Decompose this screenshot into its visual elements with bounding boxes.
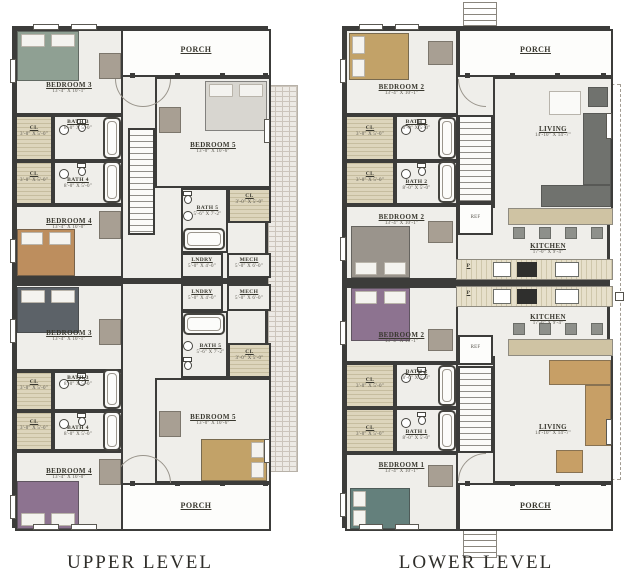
room-closet-c2 [345, 161, 395, 205]
porch-post [263, 73, 268, 78]
window [395, 24, 419, 30]
bed-bedroom4-b [17, 481, 79, 529]
kitchen-sink-b [493, 289, 511, 304]
stairs-lower-a [458, 115, 493, 203]
porch-post [175, 73, 180, 78]
bed-bedroom5-a [205, 81, 267, 131]
brick-patio [268, 85, 298, 472]
toilet-bath4-b [77, 413, 86, 426]
room-name: KITCHEN [493, 313, 603, 321]
party-wall-upper [15, 278, 265, 284]
tub-bath4-b [103, 411, 121, 451]
tub-bath1-b [438, 410, 456, 451]
bed-bedroom1 [350, 488, 410, 529]
bed-bedroom2-a [349, 33, 409, 80]
stairs-upper-a [128, 128, 155, 235]
window [10, 319, 16, 343]
ref-box-a [458, 203, 493, 235]
stool [539, 227, 551, 239]
porch-post [555, 481, 560, 486]
lower-level-title: LOWER LEVEL [342, 552, 610, 574]
porch-post [601, 73, 606, 78]
bed-bedroom3-a [17, 31, 79, 81]
room-porch-upper-bottom [121, 483, 271, 531]
stool [565, 323, 577, 335]
range-a [555, 262, 579, 277]
window [606, 419, 612, 445]
window [264, 439, 270, 463]
porch-post [510, 481, 515, 486]
range-b [555, 289, 579, 304]
window [71, 524, 97, 530]
window [340, 237, 346, 261]
tub-bath4-a [103, 161, 121, 203]
room-dims: 17'-0" X 9'-4" [493, 250, 603, 256]
porch-post [465, 481, 470, 486]
tub-bath2-a [438, 161, 456, 203]
room-closet-b3 [228, 343, 271, 378]
bed-bedroom4-a [17, 229, 75, 276]
porch-post [263, 481, 268, 486]
sink-bath1-b [401, 418, 411, 428]
room-closet-c1 [345, 115, 395, 161]
room-laundry-a [181, 253, 223, 278]
desk-bedroom4-b [99, 459, 121, 485]
stairs-lower-b [458, 366, 493, 453]
tub-bath3-a [103, 117, 121, 159]
bed-bedroom2-b [351, 226, 410, 278]
porch-post [510, 73, 515, 78]
desk-bedroom2-b [428, 221, 453, 243]
desk-bedroom2-c [428, 329, 453, 351]
room-closet-a3 [228, 188, 271, 223]
bed-bedroom2-c [351, 288, 410, 341]
window [33, 24, 59, 30]
toilet-bath3-a [77, 119, 86, 132]
stool [565, 227, 577, 239]
toilet-bath5-b [183, 357, 192, 370]
overhang-dashed-line [620, 84, 621, 480]
room-name: KITCHEN [493, 242, 603, 250]
toilet-bath1-b [417, 412, 426, 425]
room-closet-b2 [15, 411, 53, 451]
cooktop-a [517, 262, 537, 277]
toilet-bath3-b [77, 373, 86, 386]
kitchen-sink-a [493, 262, 511, 277]
sink-bath1-a [401, 125, 411, 135]
sink-bath5-b [183, 341, 193, 351]
porch-post [130, 73, 135, 78]
armchair-b [556, 450, 583, 473]
toilet-bath1-a [417, 119, 426, 132]
sink-bath3-b [59, 379, 69, 389]
tub-bath5-b [183, 313, 225, 335]
window [340, 321, 346, 345]
desk-bedroom5-a [159, 107, 181, 133]
window [10, 495, 16, 519]
window [71, 24, 97, 30]
room-laundry-b [181, 284, 223, 311]
window [606, 113, 612, 139]
sink-bath3-a [59, 125, 69, 135]
toilet-bath2-b [417, 367, 426, 380]
tub-bath1-a [438, 117, 456, 159]
toilet-bath2-a [417, 163, 426, 176]
sink-bath2-b [401, 373, 411, 383]
room-closet-c4 [345, 408, 395, 453]
door-arc [458, 79, 486, 107]
room-porch-upper-top [121, 29, 271, 77]
window [340, 59, 346, 83]
desk-bedroom4-a [99, 211, 121, 239]
stool [513, 323, 525, 335]
stool [591, 227, 603, 239]
label-kitchen-a: KITCHEN17'-0" X 9'-4" [493, 242, 603, 256]
bed-bedroom3-b [17, 287, 79, 333]
stool [539, 323, 551, 335]
window [395, 524, 419, 530]
tub-bath2-b [438, 365, 456, 406]
room-porch-lower-bottom [458, 483, 613, 531]
room-closet-a2 [15, 161, 53, 205]
stool [591, 323, 603, 335]
entry-steps-top [463, 2, 497, 26]
stool [513, 227, 525, 239]
window [359, 524, 383, 530]
desk-bedroom5-b [159, 411, 181, 437]
window [264, 119, 270, 143]
tub-bath5-a [183, 228, 225, 250]
sink-bath2-a [401, 169, 411, 179]
sectional-a-horizontal [541, 185, 611, 207]
room-mech-a [227, 253, 271, 278]
coffee-table-a [549, 91, 581, 115]
toilet-bath4-a [77, 163, 86, 176]
porch-post [220, 73, 225, 78]
room-closet-b1 [15, 371, 53, 411]
window [10, 59, 16, 83]
dresser-bedroom2-a [428, 41, 453, 65]
porch-post [555, 73, 560, 78]
dresser-bedroom3-a [99, 53, 121, 79]
window [10, 239, 16, 263]
porch-post [130, 481, 135, 486]
bed-bedroom5-b [201, 439, 267, 481]
window [340, 493, 346, 517]
tub-bath3-b [103, 369, 121, 409]
kitchen-bar-b [508, 339, 613, 356]
room-porch-lower-top [458, 29, 613, 77]
ref-box-b [458, 335, 493, 365]
room-closet-c3 [345, 363, 395, 408]
desk-bedroom3-b [99, 319, 121, 345]
sink-bath5-a [183, 211, 193, 221]
armchair-a [588, 87, 608, 107]
utility-marker [615, 292, 624, 301]
upper-level-title: UPPER LEVEL [12, 552, 268, 574]
sink-bath4-a [59, 169, 69, 179]
cooktop-b [517, 289, 537, 304]
lower-level-building: PORCH BEDROOM 213'-4" X 10'-1" CL3'-0" X… [342, 26, 610, 528]
floor-plan-canvas: PORCH BEDROOM 313'-4" X 10'-1" CL3'-0" X… [0, 0, 640, 587]
porch-post [220, 481, 225, 486]
desk-bedroom1 [428, 465, 453, 487]
sectional-b-horizontal [549, 360, 611, 385]
room-mech-b [227, 284, 271, 311]
porch-post [175, 481, 180, 486]
porch-post [465, 73, 470, 78]
sink-bath4-b [59, 419, 69, 429]
door-arc [458, 453, 486, 481]
room-closet-a1 [15, 115, 53, 161]
porch-post [601, 481, 606, 486]
window [359, 24, 383, 30]
toilet-bath5-a [183, 191, 192, 204]
window [33, 524, 59, 530]
kitchen-bar-a [508, 208, 613, 225]
upper-level-building: PORCH BEDROOM 313'-4" X 10'-1" CL3'-0" X… [12, 26, 268, 528]
